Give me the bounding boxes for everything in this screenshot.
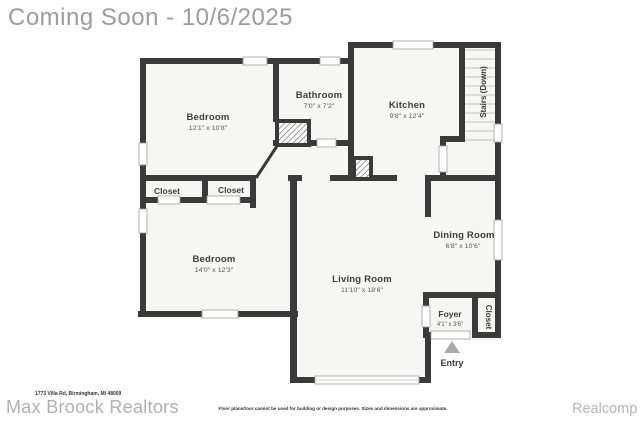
room-dims-kitchen: 9'8" x 12'4" xyxy=(390,113,425,120)
room-dims-dining-room: 6'8" x 10'6" xyxy=(446,243,481,250)
room-label-stairs: Stairs (Down) xyxy=(479,66,488,118)
room-label-kitchen: Kitchen xyxy=(389,100,425,111)
room-dims-living-room: 11'10" x 18'6" xyxy=(341,287,383,294)
floor-plan-page: Coming Soon - 10/6/2025 xyxy=(0,0,640,426)
room-label-living-room: Living Room xyxy=(332,274,392,285)
entry-arrow-icon xyxy=(444,341,460,353)
room-dims-bedroom-2: 14'0" x 12'3" xyxy=(195,267,234,274)
room-label-bedroom-2: Bedroom xyxy=(192,254,235,265)
room-label-bathroom: Bathroom xyxy=(296,90,342,101)
room-label-closet-3: Closet xyxy=(484,305,493,330)
room-label-closet-1: Closet xyxy=(154,186,180,196)
room-dims-bathroom: 7'0" x 7'2" xyxy=(304,103,335,110)
provider-watermark: Realcomp xyxy=(572,401,637,417)
disclaimer-text: Floor plans/tour cannot be used for buil… xyxy=(213,406,453,412)
room-label-foyer: Foyer xyxy=(438,309,462,319)
room-label-dining-room: Dining Room xyxy=(433,230,494,241)
room-label-closet-2: Closet xyxy=(218,185,244,195)
brokerage-watermark: Max Broock Realtors xyxy=(6,397,179,418)
room-dims-foyer: 4'1" x 3'6" xyxy=(437,322,463,328)
room-dims-bedroom-1: 12'1" x 10'8" xyxy=(189,125,228,132)
floor-plan-drawing: Bedroom 12'1" x 10'8" Bathroom 7'0" x 7'… xyxy=(0,0,640,426)
entry-label: Entry xyxy=(440,358,463,368)
room-label-bedroom-1: Bedroom xyxy=(186,112,229,123)
